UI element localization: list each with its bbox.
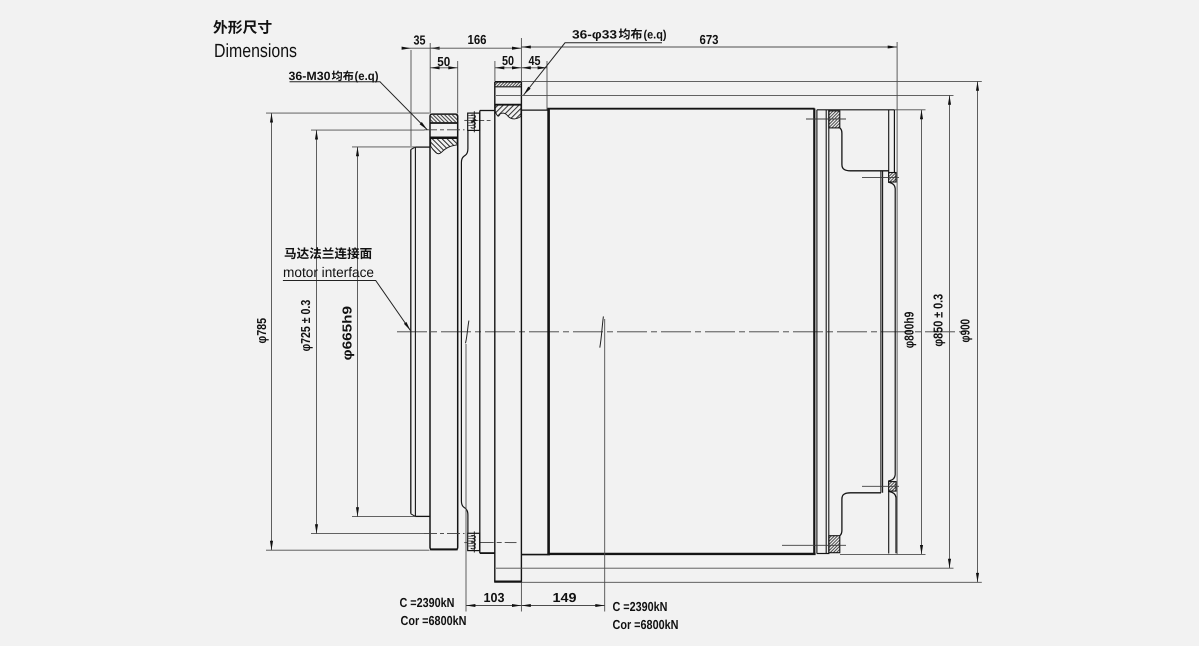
svg-text:C =2390kN: C =2390kN [400, 595, 455, 610]
svg-text:Cor =6800kN: Cor =6800kN [401, 613, 467, 628]
svg-text:φ785: φ785 [254, 318, 269, 344]
svg-text:149: 149 [553, 590, 577, 605]
svg-text:36-M30: 36-M30 [289, 69, 331, 83]
svg-text:36-φ33: 36-φ33 [572, 28, 617, 42]
svg-text:motor interface: motor interface [283, 264, 374, 280]
svg-text:673: 673 [700, 32, 719, 47]
svg-text:50: 50 [437, 54, 450, 69]
svg-text:35: 35 [414, 33, 426, 48]
svg-text:C =2390kN: C =2390kN [613, 599, 668, 614]
svg-text:φ725 ± 0.3: φ725 ± 0.3 [298, 300, 313, 352]
svg-text:(e.q): (e.q) [644, 28, 667, 42]
svg-text:166: 166 [468, 32, 487, 47]
svg-text:103: 103 [484, 590, 505, 605]
svg-text:Cor =6800kN: Cor =6800kN [613, 617, 679, 632]
svg-text:(e.q): (e.q) [355, 69, 379, 83]
svg-text:φ850 ± 0.3: φ850 ± 0.3 [931, 294, 946, 347]
svg-text:φ900: φ900 [958, 319, 973, 343]
svg-text:φ800h9: φ800h9 [902, 312, 917, 349]
svg-text:Dimensions: Dimensions [214, 41, 297, 62]
svg-text:50: 50 [502, 53, 514, 68]
svg-text:φ665h9: φ665h9 [340, 306, 355, 360]
svg-text:45: 45 [529, 53, 541, 68]
